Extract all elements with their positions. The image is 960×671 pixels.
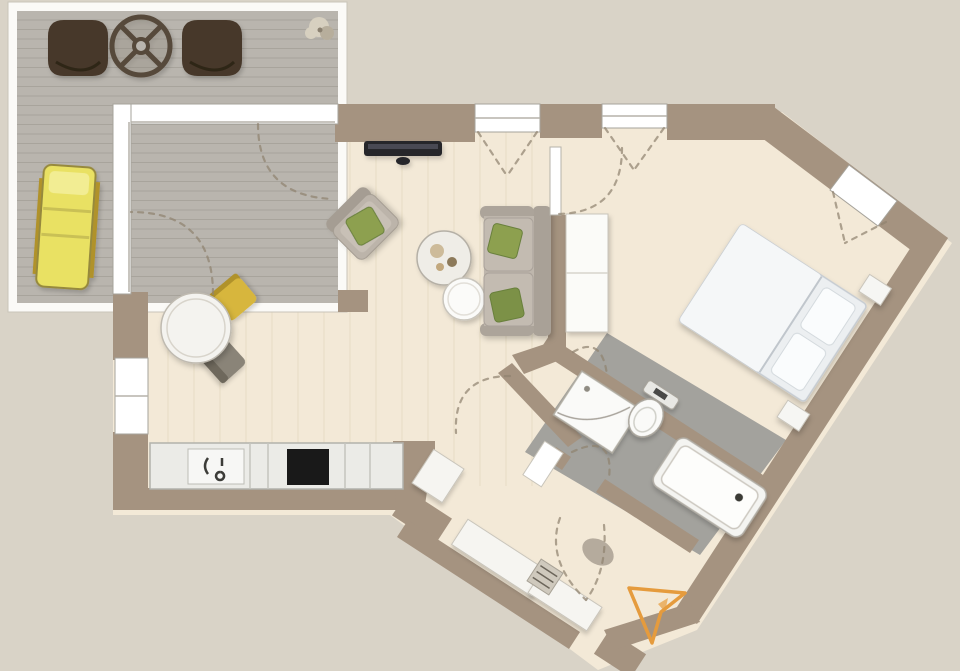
sun-lounger [32,164,101,290]
kitchen [150,443,403,489]
wall-bottom-kitchen [113,488,403,510]
wall-top-living [335,104,475,142]
sofa-pillow-1 [487,223,523,259]
wall-terrace-corner [338,290,368,312]
coffee-table-decor [417,231,471,285]
wall-left-lower [113,432,148,492]
coffee-table-small [443,278,485,320]
plant-detail [318,28,323,33]
deck-chair-left [48,20,108,76]
terrace [8,2,347,312]
sofa-pillow-2 [489,287,525,323]
floor-plan-svg [0,0,960,671]
dining-table [161,293,231,363]
tv-stand [396,157,410,165]
cooktop [287,449,329,485]
wall-left-upper [113,292,148,360]
bedroom-door-leaf [550,147,561,215]
floor-plan-page [0,0,960,671]
terrace-table-center [134,39,148,53]
sliding-door-top [113,104,338,124]
decor-item [436,263,444,271]
wall-top-mid [540,104,602,138]
deck-chair-right [182,20,242,76]
sofa [480,206,551,336]
terrace-table [112,17,170,75]
tv-screen [368,144,438,149]
